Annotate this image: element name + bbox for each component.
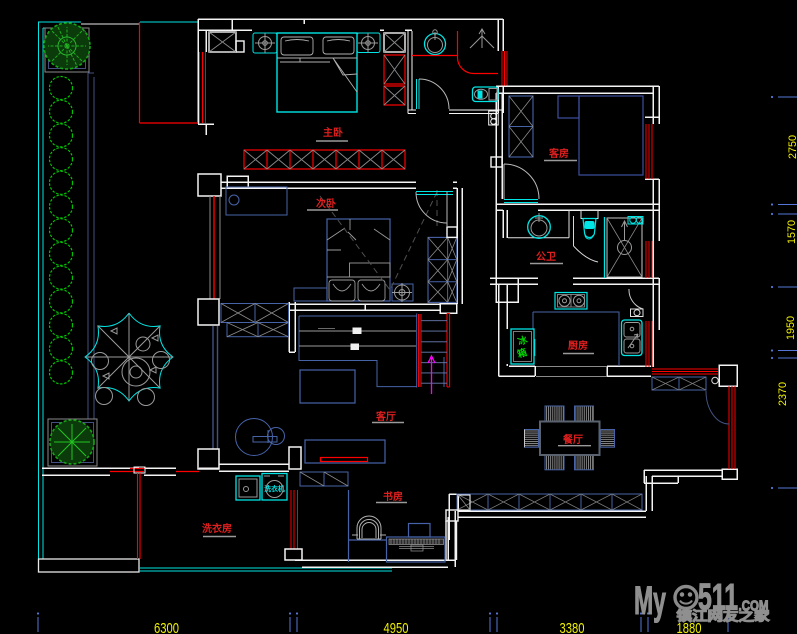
svg-text:4950: 4950: [384, 620, 409, 634]
svg-text:次卧: 次卧: [316, 197, 336, 210]
svg-text:洗衣机: 洗衣机: [264, 484, 285, 493]
svg-text:主卧: 主卧: [323, 126, 343, 139]
svg-text:洗衣房: 洗衣房: [202, 522, 232, 535]
svg-text:书房: 书房: [383, 490, 403, 503]
svg-text:1950: 1950: [785, 316, 797, 340]
svg-text:1570: 1570: [786, 220, 797, 244]
svg-text:镇江网友之家: 镇江网友之家: [677, 609, 771, 624]
svg-text:餐厅: 餐厅: [562, 433, 583, 446]
svg-text:客房: 客房: [548, 147, 569, 160]
svg-text:厨房: 厨房: [568, 339, 588, 352]
svg-text:2370: 2370: [777, 382, 789, 406]
svg-text:My: My: [634, 579, 666, 623]
svg-text:3380: 3380: [560, 620, 585, 634]
svg-text:公卫: 公卫: [536, 251, 556, 263]
svg-text:客厅: 客厅: [375, 410, 396, 423]
svg-text:2750: 2750: [787, 135, 797, 159]
svg-text:6300: 6300: [154, 620, 179, 634]
